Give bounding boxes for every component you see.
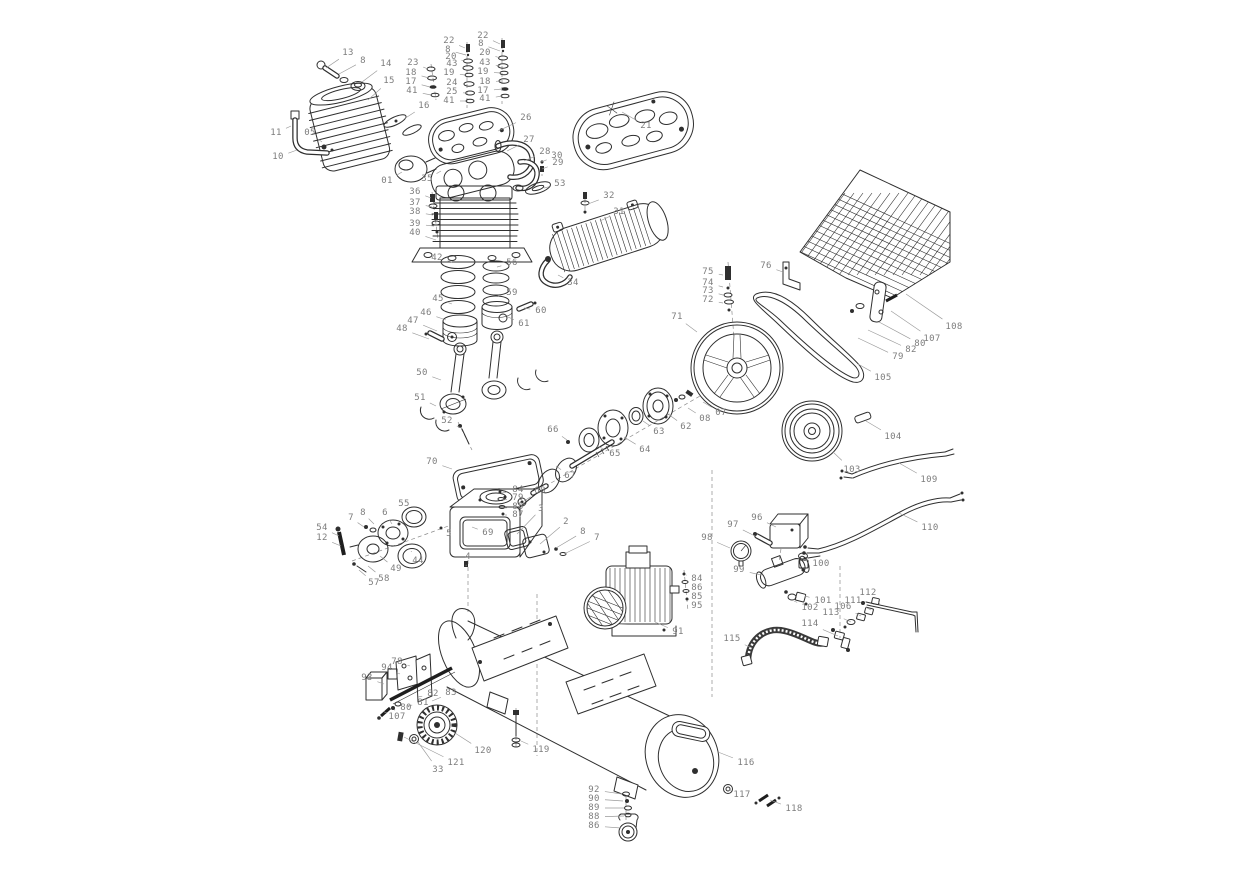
part-label: 107: [923, 334, 940, 344]
part-label: 113: [822, 608, 839, 618]
part-label: 95: [691, 601, 702, 611]
part-label: 46: [420, 308, 431, 318]
part-label: 19: [477, 67, 488, 77]
part-label: 107: [388, 712, 405, 722]
part-label: 75: [702, 267, 713, 277]
part-label: 98: [701, 533, 712, 543]
part-label: 38: [409, 207, 420, 217]
part-label: 33: [432, 765, 443, 775]
part-label: 120: [474, 746, 491, 756]
part-label: 65: [609, 449, 620, 459]
part-label: 82: [427, 689, 438, 699]
part-label: 118: [785, 804, 802, 814]
part-label: 59: [506, 288, 517, 298]
part-label: 97: [727, 520, 738, 530]
part-label: 21: [640, 121, 651, 131]
part-label: 8: [580, 527, 586, 537]
part-label: 71: [671, 312, 682, 322]
part-label: 7: [348, 513, 354, 523]
part-label: 4: [465, 552, 471, 562]
part-label: 36: [409, 187, 420, 197]
part-label: 103: [843, 465, 860, 475]
part-label: 117: [733, 790, 750, 800]
part-label: 08: [699, 414, 710, 424]
part-label: 96: [751, 513, 762, 523]
part-label: 55: [398, 499, 409, 509]
part-label: 31: [613, 207, 624, 217]
part-label: 81: [417, 698, 428, 708]
part-label: 61: [518, 319, 529, 329]
part-label: 66: [547, 425, 558, 435]
part-label: 110: [921, 523, 938, 533]
part-label: 87: [512, 510, 523, 520]
part-label: 3: [538, 504, 544, 514]
part-label: 94: [381, 663, 392, 673]
part-label: 49: [390, 564, 401, 574]
part-label: 104: [884, 432, 901, 442]
part-label: 70: [426, 457, 437, 467]
part-label: 32: [603, 191, 614, 201]
part-label: 57: [368, 578, 379, 588]
part-label: 108: [945, 322, 962, 332]
part-label: 7: [594, 533, 600, 543]
part-label: 07: [715, 408, 726, 418]
part-label: 6: [382, 508, 388, 518]
part-label: 51: [414, 393, 425, 403]
part-label: 8: [360, 508, 366, 518]
part-label: 109: [920, 475, 937, 485]
part-label: 72: [702, 295, 713, 305]
part-label: 76: [760, 261, 771, 271]
part-label: 52: [441, 416, 452, 426]
part-label: 69: [482, 528, 493, 538]
part-label: 119: [532, 745, 549, 755]
part-label: 68: [534, 486, 545, 496]
part-label: 01: [381, 176, 392, 186]
background: [0, 0, 1242, 872]
part-label: 93: [361, 673, 372, 683]
part-label: 45: [432, 294, 443, 304]
part-label: 48: [396, 324, 407, 334]
part-label: 41: [406, 86, 417, 96]
part-label: 50: [416, 368, 427, 378]
part-label: 11: [270, 128, 281, 138]
part-label: 27: [523, 135, 534, 145]
part-label: 58: [378, 574, 389, 584]
part-label: 82: [905, 345, 916, 355]
part-label: 13: [342, 48, 353, 58]
part-label: 12: [316, 533, 327, 543]
part-label: 19: [443, 68, 454, 78]
part-label: 42: [431, 253, 442, 263]
part-label: 56: [506, 258, 517, 268]
part-label: 35: [421, 174, 432, 184]
part-label: 34: [567, 278, 578, 288]
runner-bolt: [540, 161, 544, 173]
part-label: 91: [672, 627, 683, 637]
part-label: 41: [443, 96, 454, 106]
part-label: 14: [380, 59, 391, 69]
part-label: 105: [874, 373, 891, 383]
part-label: 47: [407, 316, 418, 326]
part-label: 2: [563, 517, 569, 527]
part-label: 99: [733, 565, 744, 575]
part-label: 78: [391, 657, 402, 667]
part-label: 05: [304, 128, 315, 138]
part-label: 54: [316, 523, 327, 533]
part-label: 41: [479, 94, 490, 104]
part-label: 28: [539, 147, 550, 157]
part-label: 53: [554, 179, 565, 189]
part-label: 16: [418, 101, 429, 111]
part-label: 83: [445, 688, 456, 698]
pressure-switch: [770, 514, 808, 548]
part-label: 116: [737, 758, 754, 768]
part-label: 23: [407, 58, 418, 68]
part-label: 112: [859, 588, 876, 598]
part-label: 26: [520, 113, 531, 123]
exploded-diagram: 1381415110510231817411622820431924254122…: [0, 0, 1242, 872]
part-label: 5: [446, 529, 452, 539]
part-label: 60: [535, 306, 546, 316]
part-label: 86: [588, 821, 599, 831]
diagram-canvas: 1381415110510231817411622820431924254122…: [0, 0, 1242, 872]
part-label: 63: [653, 427, 664, 437]
part-label: 115: [723, 634, 740, 644]
part-label: 10: [272, 152, 283, 162]
part-label: 62: [680, 422, 691, 432]
part-label: 29: [552, 158, 563, 168]
part-label: 100: [812, 559, 829, 569]
part-label: 20: [479, 48, 490, 58]
part-label: 67: [564, 471, 575, 481]
part-label: 102: [801, 603, 818, 613]
part-label: 121: [447, 758, 464, 768]
part-label: 64: [639, 445, 650, 455]
part-label: 44: [412, 556, 423, 566]
part-label: 15: [383, 76, 394, 86]
part-label: 8: [360, 56, 366, 66]
part-label: 114: [801, 619, 818, 629]
part-label: 79: [892, 352, 903, 362]
wheel: [417, 705, 457, 745]
part-label: 40: [409, 228, 420, 238]
